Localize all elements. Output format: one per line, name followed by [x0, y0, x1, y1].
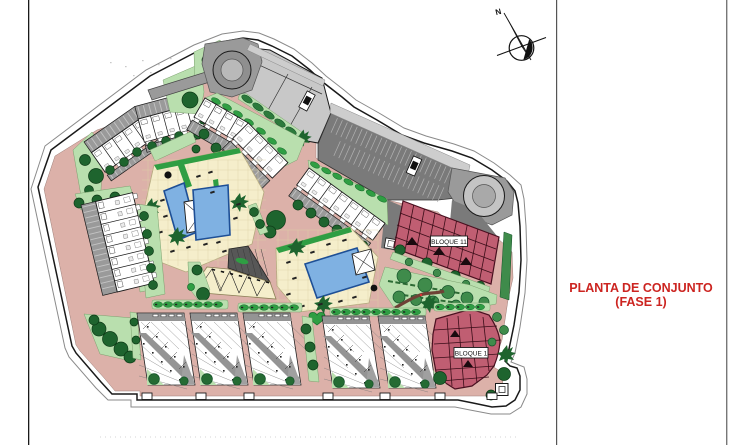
svg-text:BLOQUE 11: BLOQUE 11 — [431, 239, 467, 246]
svg-text:BLOQUE 1: BLOQUE 1 — [455, 351, 488, 358]
svg-text:PLANTA DE CONJUNTO: PLANTA DE CONJUNTO — [569, 281, 713, 295]
svg-text:(FASE 1): (FASE 1) — [615, 295, 666, 309]
